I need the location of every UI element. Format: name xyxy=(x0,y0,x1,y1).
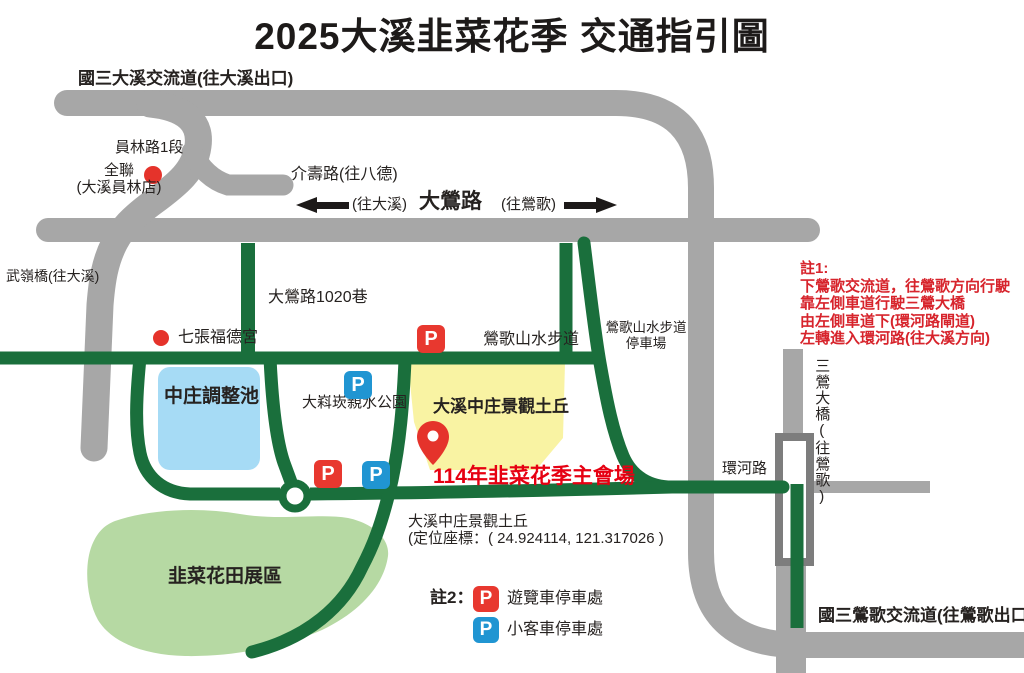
note1-heading: 註1: xyxy=(800,260,1010,278)
map-title: 2025大溪韭菜花季 交通指引圖 xyxy=(0,6,1024,60)
legend-bus-parking-icon: P xyxy=(473,586,499,612)
label-pond: 中庄調整池 xyxy=(164,386,259,408)
bus-parking-icon-trail: P xyxy=(417,325,445,353)
label-yingge-trail: 鶯歌山水步道 xyxy=(483,331,579,349)
car-parking-icon-venue: P xyxy=(362,461,390,489)
label-landscape-hill: 大溪中庄景觀土丘 xyxy=(433,397,569,417)
jieshou-road xyxy=(192,152,283,185)
legend-heading: 註2： xyxy=(430,588,473,608)
label-venue-name: 大溪中庄景觀土丘 xyxy=(408,513,528,530)
label-daying-road: 大鶯路 xyxy=(419,190,482,214)
p-letter: P xyxy=(424,328,437,351)
p-letter: P xyxy=(321,463,334,486)
roundabout xyxy=(283,484,308,509)
p-letter: P xyxy=(351,374,364,397)
p-letter: P xyxy=(369,464,382,487)
note1-block: 註1: 下鶯歌交流道，往鶯歌方向行駛 靠左側車道行駛三鶯大橋 由左側車道下(環河… xyxy=(800,260,1010,348)
car-parking-icon-park: P xyxy=(344,371,372,399)
p-letter: P xyxy=(480,588,493,610)
p-letter: P xyxy=(480,619,493,641)
label-sanying-bridge: 三鶯大橋(往鶯歌) xyxy=(813,358,830,506)
label-pxmart-line1: 全聯 xyxy=(72,162,166,179)
label-huanhe-road: 環河路 xyxy=(722,460,767,477)
label-venue-coords: (定位座標：( 24.924114, 121.317026 ) xyxy=(408,530,664,547)
label-main-venue: 114年韭菜花季主會場 xyxy=(433,465,635,489)
label-jieshou-road: 介壽路(往八德) xyxy=(291,166,398,184)
bus-parking-icon-venue: P xyxy=(314,460,342,488)
label-to-daxi: (往大溪) xyxy=(352,196,407,213)
label-flower-field: 韭菜花田展區 xyxy=(168,566,282,588)
legend-car-parking-icon: P xyxy=(473,617,499,643)
note1-line3: 由左側車道下(環河路閘道) xyxy=(800,313,1010,331)
east-arrow-icon xyxy=(564,197,617,213)
zhongzhuang-pond-area xyxy=(158,367,260,470)
label-daxi-interchange: 國三大溪交流道(往大溪出口) xyxy=(78,69,293,89)
label-yingge-interchange: 國三鶯歌交流道(往鶯歌出口) xyxy=(818,606,1024,626)
note1-line4: 左轉進入環河路(往大溪方向) xyxy=(800,330,1010,348)
legend-bus-parking-label: 遊覽車停車處 xyxy=(507,590,603,608)
label-to-yingge: (往鶯歌) xyxy=(501,196,556,213)
trail-to-huanhe-road xyxy=(584,243,783,487)
label-pxmart-line2: (大溪員林店) xyxy=(72,179,166,196)
qizhang-temple-dot xyxy=(153,330,169,346)
label-daying-lane: 大鶯路1020巷 xyxy=(268,289,368,307)
label-wuling-bridge: 武嶺橋(往大溪) xyxy=(6,268,99,284)
note1-line1: 下鶯歌交流道，往鶯歌方向行駛 xyxy=(800,278,1010,296)
label-pxmart: 全聯 (大溪員林店) xyxy=(72,162,166,197)
traffic-guide-map: 2025大溪韭菜花季 交通指引圖 國三大溪交流道(往大溪出口) 員林路1段 全聯… xyxy=(0,0,1024,673)
west-arrow-icon xyxy=(296,197,349,213)
roundabout-north-link xyxy=(270,358,291,482)
label-qizhang-temple: 七張福德宮 xyxy=(178,329,258,347)
label-yuanlin-road: 員林路1段 xyxy=(115,139,183,156)
label-trail-parking: 鶯歌山水步道 停車場 xyxy=(598,320,694,351)
label-trail-parking-line2: 停車場 xyxy=(598,336,694,352)
label-trail-parking-line1: 鶯歌山水步道 xyxy=(598,320,694,336)
note1-line2: 靠左側車道行駛三鶯大橋 xyxy=(800,295,1010,313)
legend-car-parking-label: 小客車停車處 xyxy=(507,621,603,639)
